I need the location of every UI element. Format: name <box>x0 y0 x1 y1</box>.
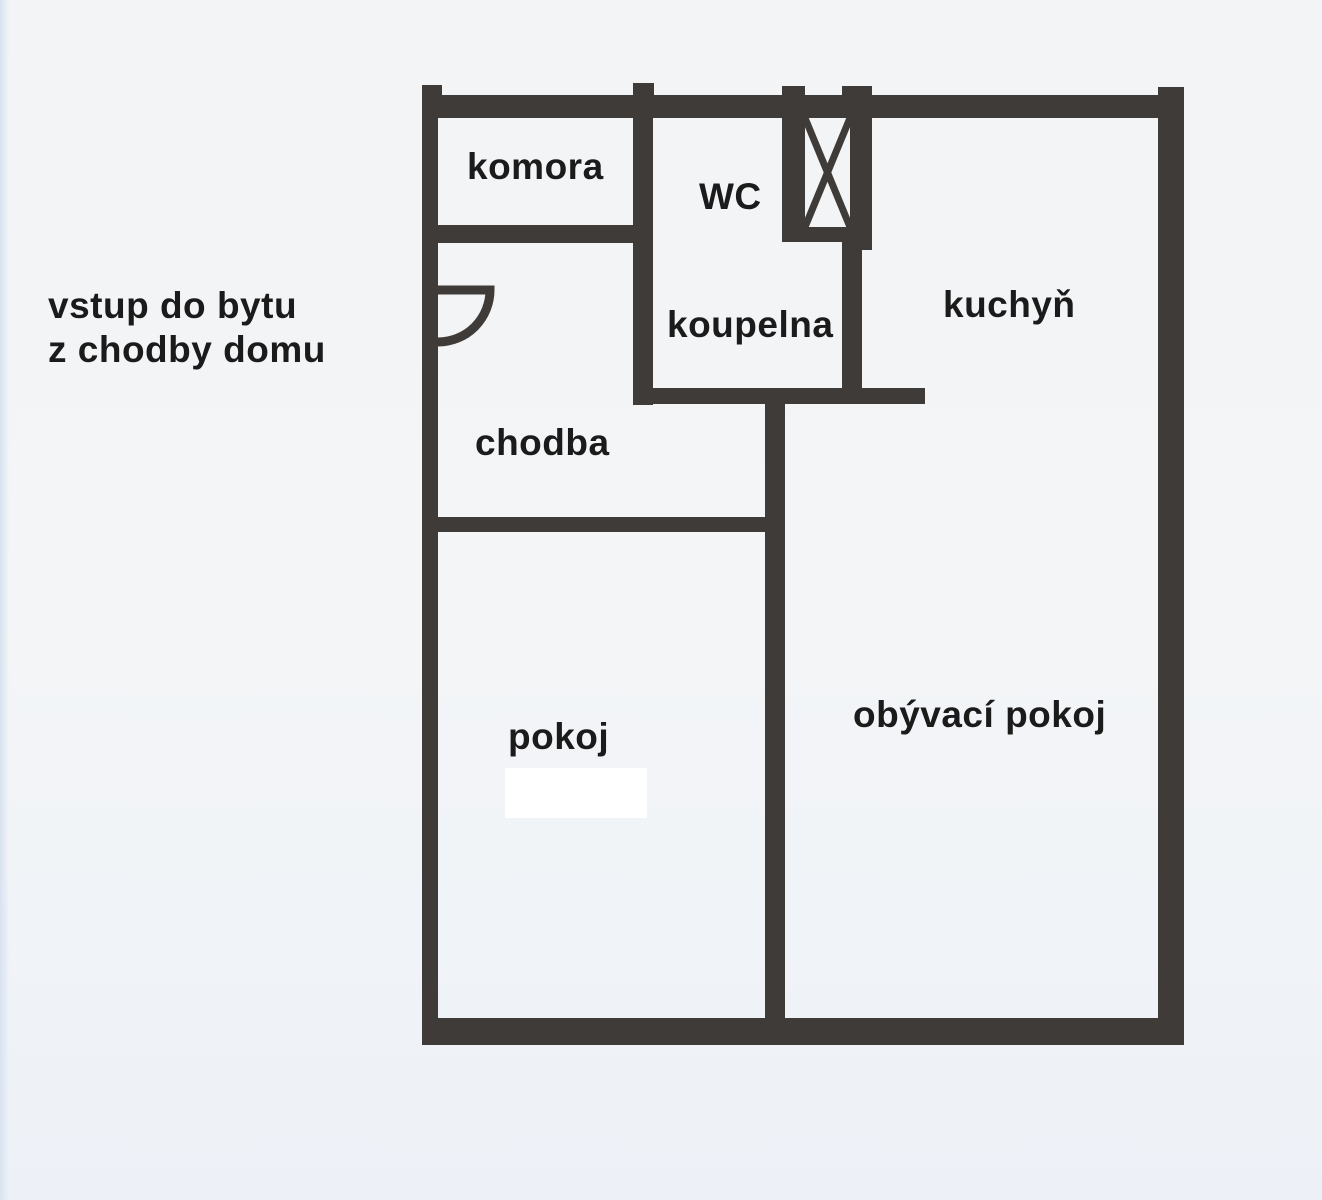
room-label-komora: komora <box>467 148 604 186</box>
room-label-pokoj: pokoj <box>508 718 609 756</box>
labels-layer: vstup do bytu z chodby domu komoraWCkuch… <box>0 0 1322 1200</box>
room-label-wc: WC <box>699 178 762 216</box>
scanned-floor-plan-page: vstup do bytu z chodby domu komoraWCkuch… <box>0 0 1322 1200</box>
room-label-obyvaci-pokoj: obývací pokoj <box>853 696 1106 734</box>
room-label-chodba: chodba <box>475 424 610 462</box>
scan-whiteout-patch <box>505 768 647 818</box>
room-label-kuchyn: kuchyň <box>943 286 1076 324</box>
room-label-koupelna: koupelna <box>667 306 833 344</box>
entry-annotation-line1: vstup do bytu <box>48 284 326 328</box>
entry-annotation: vstup do bytu z chodby domu <box>48 284 326 372</box>
entry-annotation-line2: z chodby domu <box>48 328 326 372</box>
